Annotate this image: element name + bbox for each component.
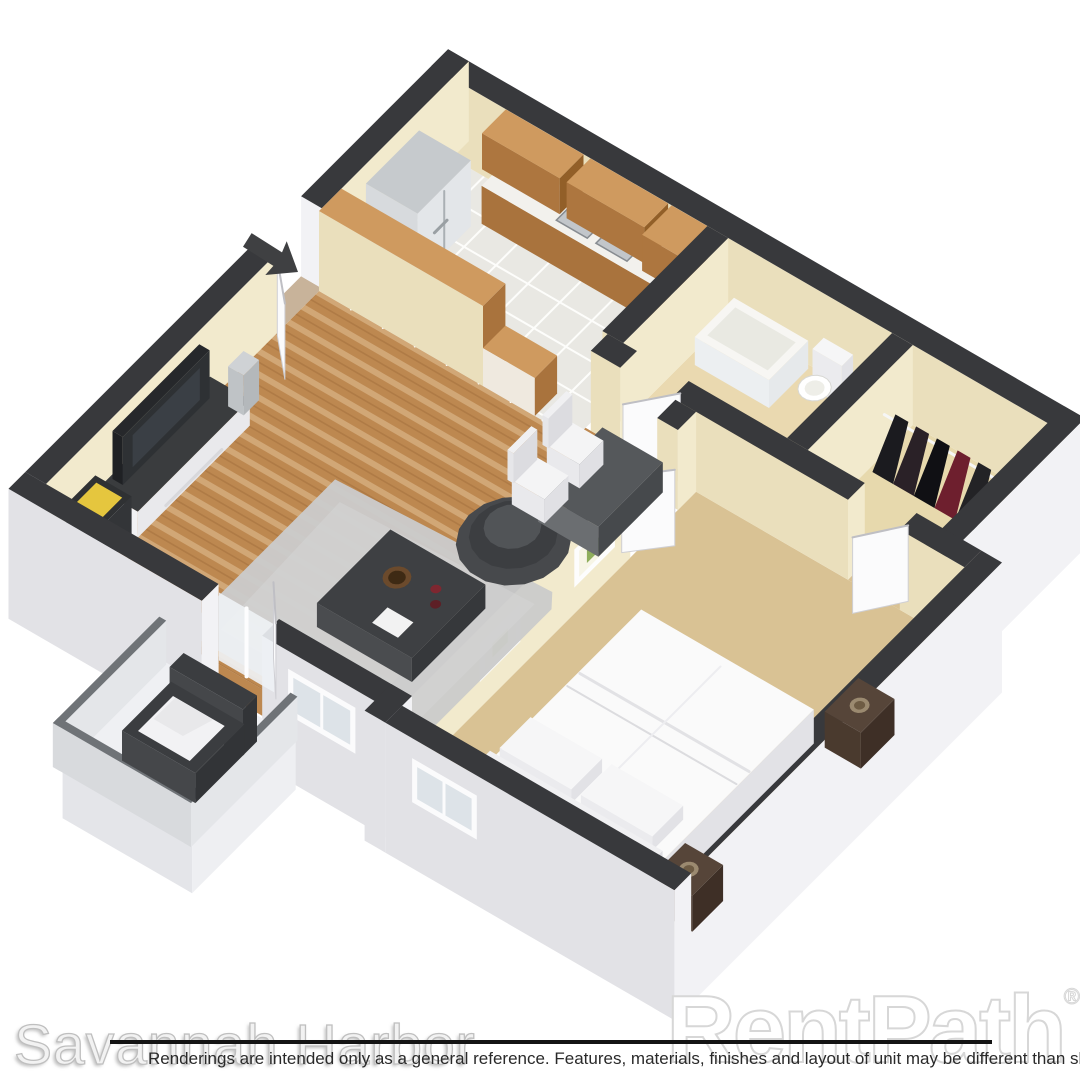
kitchen-west-wall	[301, 196, 322, 288]
closet-door	[853, 525, 909, 613]
dining-chair-back	[508, 450, 514, 484]
dining-chair-back	[543, 415, 549, 449]
floorplan-page: Savannah Harbor RentPath® Renderings are…	[0, 0, 1080, 1080]
wall-jog	[365, 711, 386, 853]
registered-mark-icon: ®	[1064, 984, 1080, 1009]
balcony-rail	[191, 797, 197, 847]
floorplan-render	[0, 0, 1080, 1080]
disclaimer-text: Renderings are intended only as a genera…	[148, 1049, 1080, 1069]
divider-line	[110, 1040, 992, 1044]
tv	[113, 431, 123, 485]
